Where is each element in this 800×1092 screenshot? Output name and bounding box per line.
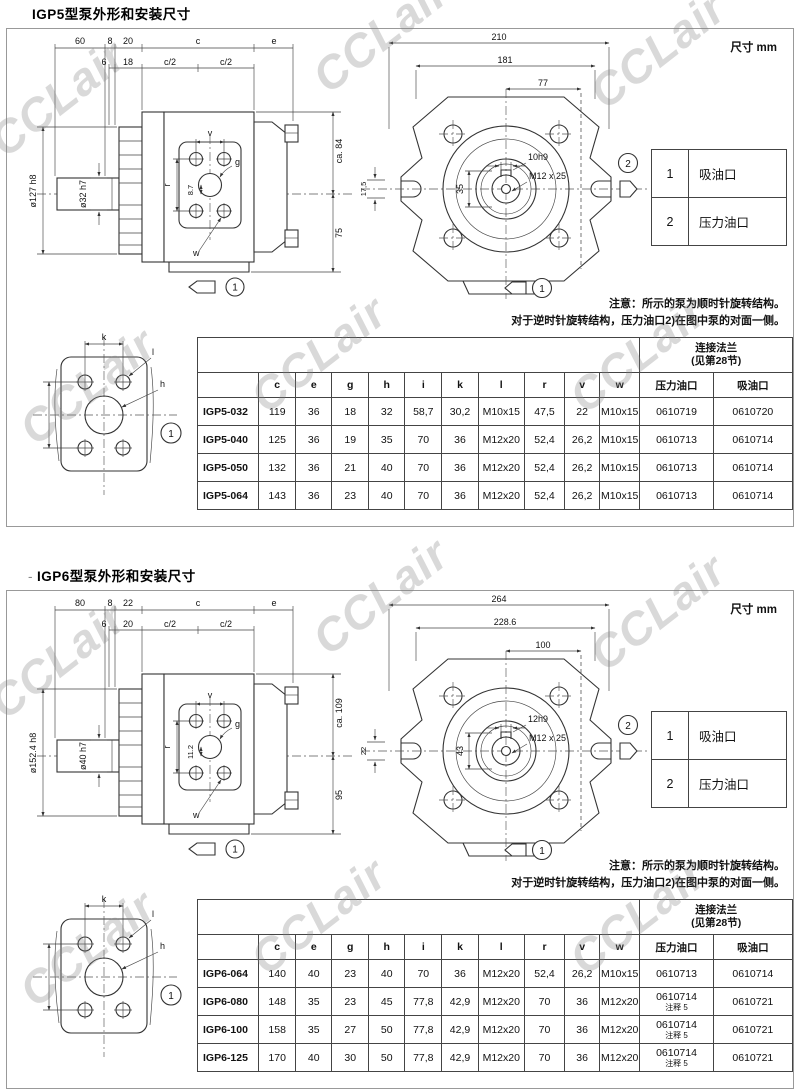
direction-arrow-icon (189, 843, 215, 855)
value-cell: 26,2 (565, 426, 600, 454)
value-cell: M12x20 (478, 1044, 524, 1072)
rear-cover (254, 684, 287, 814)
value-cell: M12x20 (478, 1016, 524, 1044)
page: IGP5型泵外形和安装尺寸 CCLair CCLair CCLair CCLai… (0, 0, 800, 1092)
table-row: IGP6-10015835275077,842,9M12x207036M12x2… (198, 1016, 793, 1044)
column-header: e (296, 373, 332, 398)
value-cell: M12x20 (478, 988, 524, 1016)
value-cell: M12x20 (600, 988, 640, 1016)
value-cell: 50 (368, 1044, 404, 1072)
note-line-2: 对于逆时针旋转结构，压力油口2)在图中泵的对面一侧。 (511, 875, 785, 892)
value-note: 注释 5 (641, 1031, 711, 1040)
pump-shaft (57, 178, 119, 210)
value-cell: 0610721 (713, 1016, 792, 1044)
value-cell: 45 (368, 988, 404, 1016)
value-cell: 0610713 (640, 426, 713, 454)
column-header: g (332, 373, 368, 398)
value-cell: 70 (405, 426, 442, 454)
port-g-label: g (235, 719, 240, 729)
dimension-table: 连接法兰(见第28节)ceghiklrvw压力油口吸油口IGP5-0321193… (197, 337, 793, 510)
flange-header-cell: 连接法兰(见第28节) (640, 900, 793, 935)
dim-label: 8 (107, 598, 112, 608)
drawing-panel: CCLair CCLair CCLair CCLair CCLair CCLai… (6, 28, 794, 527)
value-cell: 27 (332, 1016, 368, 1044)
view-direction-marker: 1 (189, 278, 244, 296)
value-cell: 125 (259, 426, 296, 454)
header-spacer-cell (198, 900, 640, 935)
value-main: 0610714 (641, 991, 711, 1003)
value-cell: 52,4 (524, 454, 565, 482)
dim-label: 80 (75, 598, 85, 608)
value-cell: 26,2 (565, 960, 600, 988)
value-cell: 26,2 (565, 482, 600, 510)
note-line-1: 注意：所示的泵为顺时针旋转结构。 (511, 858, 785, 875)
value-cell: 0610719 (640, 398, 713, 426)
value-cell: 19 (332, 426, 368, 454)
view-marker-number: 1 (232, 845, 238, 856)
center-dim-label: 35 (455, 184, 465, 194)
table-row: IGP5-03211936183258,730,2M10x1547,522M10… (198, 398, 793, 426)
key-dim-label: 12h9 (528, 714, 548, 724)
dim-label: 22 (123, 598, 133, 608)
value-cell: 0610714 (713, 482, 792, 510)
outlet-marker: 2 (619, 716, 638, 760)
shaft-outer-dia-label: ø127 h8 (29, 174, 38, 207)
bolt-width-label: 181 (497, 55, 512, 65)
column-header: r (524, 373, 565, 398)
dim-label: e (271, 598, 276, 608)
flange-view-marker: 1 (161, 985, 181, 1005)
table-row: IGP6-0641404023407036M12x2052,426,2M10x1… (198, 960, 793, 988)
value-cell: 23 (332, 482, 368, 510)
port-legend: 1吸油口2压力油口 (651, 149, 787, 246)
value-cell: 36 (442, 426, 479, 454)
flange-subheader-text: (见第28节) (641, 917, 791, 930)
value-cell: 0610714 (713, 960, 792, 988)
value-cell: M10x15 (600, 960, 640, 988)
legend-label: 吸油口 (689, 712, 787, 760)
value-cell: M10x15 (600, 482, 640, 510)
center-dim-label: 43 (455, 746, 465, 756)
value-cell: 0610720 (713, 398, 792, 426)
value-cell: 36 (296, 454, 332, 482)
flange-marker-number: 1 (168, 991, 174, 1002)
column-header-row: ceghiklrvw压力油口吸油口 (198, 373, 793, 398)
value-cell: 132 (259, 454, 296, 482)
legend-number: 1 (652, 712, 689, 760)
key-dim-label: 10h9 (528, 152, 548, 162)
flange-view-marker: 1 (161, 423, 181, 443)
legend-row: 2压力油口 (652, 760, 787, 808)
column-header: e (296, 935, 332, 960)
k-dim-label: k (102, 894, 107, 904)
header-spacer-cell (198, 338, 640, 373)
slot-offset-label: 17,5 (359, 182, 368, 197)
table-row: IGP5-0401253619357036M12x2052,426,2M10x1… (198, 426, 793, 454)
model-cell: IGP6-080 (198, 988, 259, 1016)
catalog-section: -IGP6型泵外形和安装尺寸 CCLair CCLair CCLair CCLa… (0, 564, 800, 1089)
value-cell: 158 (259, 1016, 296, 1044)
value-cell: 70 (405, 454, 442, 482)
value-cell: 36 (296, 482, 332, 510)
column-header: l (478, 373, 524, 398)
model-cell: IGP6-100 (198, 1016, 259, 1044)
bolt-width-label: 228.6 (494, 617, 517, 627)
value-cell: M10x15 (600, 454, 640, 482)
value-cell: 40 (368, 454, 404, 482)
value-cell: 36 (442, 454, 479, 482)
dim-label: 60 (75, 36, 85, 46)
column-header: w (600, 935, 640, 960)
value-cell: 42,9 (442, 1044, 479, 1072)
flange-marker-number: 1 (168, 429, 174, 440)
value-cell: 119 (259, 398, 296, 426)
value-cell: 70 (405, 960, 442, 988)
rear-cover (254, 122, 287, 252)
value-cell: M10x15 (600, 398, 640, 426)
value-cell: 70 (524, 988, 565, 1016)
flange-view-drawing: k l h 1 (19, 327, 204, 517)
unit-label: 尺寸 mm (730, 601, 777, 617)
height-top-label: ca. 84 (334, 139, 344, 164)
dim-label: 20 (123, 619, 133, 629)
table-row: IGP5-0501323621407036M12x2052,426,2M10x1… (198, 454, 793, 482)
outlet-arrow-icon (620, 743, 637, 759)
value-cell: 0610721 (713, 988, 792, 1016)
inlet-arrow-icon (505, 844, 526, 856)
value-cell: 36 (296, 426, 332, 454)
title-prefix: - (28, 569, 33, 584)
value-cell: M12x20 (478, 454, 524, 482)
section-title: -IGP6型泵外形和安装尺寸 (28, 564, 800, 590)
shaft-flange-ring (119, 689, 142, 816)
value-cell: M10x15 (600, 426, 640, 454)
table-row: IGP5-0641433623407036M12x2052,426,2M10x1… (198, 482, 793, 510)
shaft-inner-dia-label: ø40 h7 (78, 742, 88, 770)
value-note: 注释 5 (641, 1003, 711, 1012)
value-cell: 23 (332, 960, 368, 988)
note-line-1: 注意：所示的泵为顺时针旋转结构。 (511, 296, 785, 313)
height-bottom-label: 75 (334, 228, 344, 238)
legend-number: 2 (652, 198, 689, 246)
value-cell: 70 (405, 482, 442, 510)
value-cell: 36 (565, 988, 600, 1016)
dim-label: c/2 (164, 619, 176, 629)
port-w-label: w (192, 248, 200, 258)
l-dim-label: l (152, 347, 154, 357)
thread-label: M12 x 25 (529, 171, 566, 181)
value-cell: 77,8 (405, 988, 442, 1016)
column-header: c (259, 373, 296, 398)
view-direction-marker: 1 (189, 840, 244, 858)
column-header: g (332, 935, 368, 960)
inlet-marker-number: 1 (539, 284, 545, 295)
value-cell: 70 (524, 1016, 565, 1044)
column-header: l (478, 935, 524, 960)
height-bottom-label: 95 (334, 790, 344, 800)
legend-label: 压力油口 (689, 760, 787, 808)
value-cell: 21 (332, 454, 368, 482)
outlet-marker-number: 2 (625, 159, 631, 170)
column-header: 压力油口 (640, 373, 713, 398)
value-cell: 0610713 (640, 960, 713, 988)
value-cell: 77,8 (405, 1016, 442, 1044)
mounting-plate (142, 112, 164, 262)
port-w-label: w (192, 810, 200, 820)
flange-subheader-text: (见第28节) (641, 355, 791, 368)
value-cell: M12x20 (600, 1044, 640, 1072)
value-cell: 23 (332, 988, 368, 1016)
column-header: h (368, 935, 404, 960)
port-width-label: 77 (538, 78, 548, 88)
value-main: 0610714 (641, 1047, 711, 1059)
dim-label: c (196, 36, 201, 46)
model-cell: IGP5-064 (198, 482, 259, 510)
value-cell: M12x20 (478, 426, 524, 454)
center-offset-label: 8.7 (186, 185, 195, 195)
column-header: h (368, 373, 404, 398)
inlet-marker-number: 1 (539, 846, 545, 857)
legend-number: 1 (652, 150, 689, 198)
title-text: IGP6型泵外形和安装尺寸 (37, 569, 196, 584)
value-cell: 36 (442, 482, 479, 510)
port-legend: 1吸油口2压力油口 (651, 711, 787, 808)
value-cell: 0610721 (713, 1044, 792, 1072)
table-header-row: 连接法兰(见第28节) (198, 338, 793, 373)
column-header-row: ceghiklrvw压力油口吸油口 (198, 935, 793, 960)
outlet-marker: 2 (619, 154, 638, 198)
bottom-port-block (169, 262, 249, 272)
value-cell: 52,4 (524, 482, 565, 510)
value-cell: 50 (368, 1016, 404, 1044)
overall-width-label: 210 (491, 32, 506, 42)
model-cell: IGP5-040 (198, 426, 259, 454)
shaft-outer-dia-label: ø152.4 h8 (29, 733, 38, 774)
value-cell: 36 (296, 398, 332, 426)
dim-label: c (196, 598, 201, 608)
value-cell: 32 (368, 398, 404, 426)
pump-shaft (57, 740, 119, 772)
dim-label: 6 (101, 619, 106, 629)
value-cell: 52,4 (524, 960, 565, 988)
dim-label: 6 (101, 57, 106, 67)
outlet-marker-number: 2 (625, 721, 631, 732)
value-cell: 30 (332, 1044, 368, 1072)
flange-view-drawing: k l h 1 (19, 889, 204, 1079)
value-cell: 35 (296, 988, 332, 1016)
value-cell: 42,9 (442, 988, 479, 1016)
dim-label: 20 (123, 36, 133, 46)
column-header: 压力油口 (640, 935, 713, 960)
catalog-section: IGP5型泵外形和安装尺寸 CCLair CCLair CCLair CCLai… (0, 2, 800, 527)
value-cell: 18 (332, 398, 368, 426)
front-view-drawing: 210 181 77 10h9 M12 x 25 (359, 31, 649, 301)
legend-row: 1吸油口 (652, 150, 787, 198)
column-header-blank (198, 935, 259, 960)
value-cell: 35 (368, 426, 404, 454)
model-cell: IGP6-064 (198, 960, 259, 988)
dim-label: c/2 (164, 57, 176, 67)
value-cell: 42,9 (442, 1016, 479, 1044)
note-line-2: 对于逆时针旋转结构，压力油口2)在图中泵的对面一侧。 (511, 313, 785, 330)
value-cell: 0610714注释 5 (640, 988, 713, 1016)
port-r-label: r (162, 184, 172, 187)
value-cell: M12x20 (478, 482, 524, 510)
column-header: c (259, 935, 296, 960)
dim-label: 18 (123, 57, 133, 67)
value-cell: 0610714 (713, 454, 792, 482)
value-cell: M12x20 (600, 1016, 640, 1044)
value-cell: 0610714注释 5 (640, 1044, 713, 1072)
bottom-port-block (169, 824, 249, 834)
value-cell: 70 (524, 1044, 565, 1072)
h-dim-label: h (160, 379, 165, 389)
value-cell: 40 (368, 482, 404, 510)
model-cell: IGP6-125 (198, 1044, 259, 1072)
value-main: 0610714 (641, 1019, 711, 1031)
legend-row: 2压力油口 (652, 198, 787, 246)
value-note: 注释 5 (641, 1059, 711, 1068)
value-cell: 77,8 (405, 1044, 442, 1072)
front-view-drawing: 264 228.6 100 12h9 M12 x (359, 593, 649, 863)
column-header-blank (198, 373, 259, 398)
value-cell: 47,5 (524, 398, 565, 426)
value-cell: M12x20 (478, 960, 524, 988)
overall-width-label: 264 (491, 594, 506, 604)
port-g-label: g (235, 157, 240, 167)
inlet-arrow-icon (505, 282, 526, 294)
model-cell: IGP5-050 (198, 454, 259, 482)
height-top-label: ca. 109 (334, 698, 344, 728)
table-header-row: 连接法兰(见第28节) (198, 900, 793, 935)
center-offset-label: 11.2 (186, 745, 195, 759)
port-v-label: v (208, 690, 213, 700)
column-header: i (405, 935, 442, 960)
column-header: r (524, 935, 565, 960)
column-header: v (565, 935, 600, 960)
column-header: k (442, 373, 479, 398)
unit-label: 尺寸 mm (730, 39, 777, 55)
port-v-label: v (208, 128, 213, 138)
column-header: w (600, 373, 640, 398)
port-r-label: r (162, 746, 172, 749)
value-cell: 36 (565, 1016, 600, 1044)
value-cell: M10x15 (478, 398, 524, 426)
legend-table: 1吸油口2压力油口 (651, 711, 787, 808)
side-view-drawing: 80 8 22 c e 6 20 c/2 c/2 (29, 597, 359, 859)
column-header: 吸油口 (713, 935, 792, 960)
value-cell: 22 (565, 398, 600, 426)
model-cell: IGP5-032 (198, 398, 259, 426)
value-cell: 30,2 (442, 398, 479, 426)
value-cell: 0610713 (640, 482, 713, 510)
section-title: IGP5型泵外形和安装尺寸 (28, 2, 800, 28)
value-cell: 36 (442, 960, 479, 988)
value-cell: 140 (259, 960, 296, 988)
l-dim-label: l (152, 909, 154, 919)
flange-header-text: 连接法兰 (641, 904, 791, 917)
legend-label: 压力油口 (689, 198, 787, 246)
value-cell: 40 (296, 960, 332, 988)
legend-label: 吸油口 (689, 150, 787, 198)
legend-row: 1吸油口 (652, 712, 787, 760)
dimension-table: 连接法兰(见第28节)ceghiklrvw压力油口吸油口IGP6-0641404… (197, 899, 793, 1072)
value-cell: 170 (259, 1044, 296, 1072)
rotation-notes: 注意：所示的泵为顺时针旋转结构。 对于逆时针旋转结构，压力油口2)在图中泵的对面… (511, 858, 785, 892)
table-row: IGP6-12517040305077,842,9M12x207036M12x2… (198, 1044, 793, 1072)
flange-header-text: 连接法兰 (641, 342, 791, 355)
shaft-flange-ring (119, 127, 142, 254)
value-cell: 52,4 (524, 426, 565, 454)
column-header: v (565, 373, 600, 398)
slot-offset-label: 22 (359, 747, 368, 755)
table-row: IGP6-08014835234577,842,9M12x207036M12x2… (198, 988, 793, 1016)
value-cell: 0610713 (640, 454, 713, 482)
column-header: k (442, 935, 479, 960)
value-cell: 26,2 (565, 454, 600, 482)
mounting-plate (142, 674, 164, 824)
column-header: i (405, 373, 442, 398)
shaft-inner-dia-label: ø32 h7 (78, 180, 88, 208)
dim-label: e (271, 36, 276, 46)
value-cell: 148 (259, 988, 296, 1016)
dim-label: c/2 (220, 619, 232, 629)
value-cell: 40 (296, 1044, 332, 1072)
legend-number: 2 (652, 760, 689, 808)
dim-label: 8 (107, 36, 112, 46)
column-header: 吸油口 (713, 373, 792, 398)
port-width-label: 100 (535, 640, 550, 650)
k-dim-label: k (102, 332, 107, 342)
value-cell: 58,7 (405, 398, 442, 426)
value-cell: 0610714 (713, 426, 792, 454)
view-marker-number: 1 (232, 283, 238, 294)
legend-table: 1吸油口2压力油口 (651, 149, 787, 246)
drawing-panel: CCLair CCLair CCLair CCLair CCLair CCLai… (6, 590, 794, 1089)
title-text: IGP5型泵外形和安装尺寸 (32, 7, 191, 22)
direction-arrow-icon (189, 281, 215, 293)
thread-label: M12 x 25 (529, 733, 566, 743)
rotation-notes: 注意：所示的泵为顺时针旋转结构。 对于逆时针旋转结构，压力油口2)在图中泵的对面… (511, 296, 785, 330)
dim-label: c/2 (220, 57, 232, 67)
value-cell: 143 (259, 482, 296, 510)
value-cell: 40 (368, 960, 404, 988)
value-cell: 36 (565, 1044, 600, 1072)
side-view-drawing: 60 8 20 c e 6 18 c/2 c/2 (29, 35, 359, 297)
h-dim-label: h (160, 941, 165, 951)
flange-header-cell: 连接法兰(见第28节) (640, 338, 793, 373)
outlet-arrow-icon (620, 181, 637, 197)
value-cell: 35 (296, 1016, 332, 1044)
value-cell: 0610714注释 5 (640, 1016, 713, 1044)
